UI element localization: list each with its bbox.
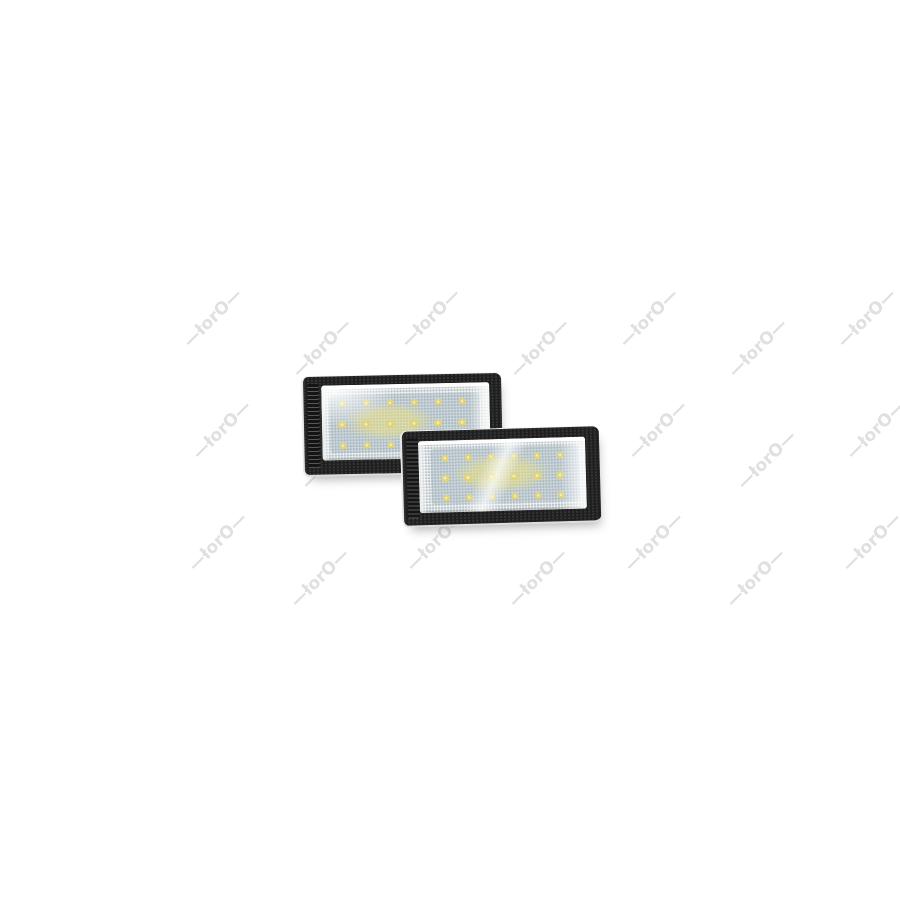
watermark-text: —łorO— bbox=[624, 396, 691, 463]
watermark-text: —łorO— bbox=[620, 508, 687, 575]
led-dot bbox=[457, 418, 467, 425]
watermark-text: —łorO— bbox=[188, 396, 255, 463]
watermark-text: —łorO— bbox=[842, 396, 900, 463]
watermark-text: —łorO— bbox=[506, 314, 573, 381]
watermark-text: —łorO— bbox=[615, 284, 682, 351]
lens-streak-reflection bbox=[418, 437, 587, 514]
watermark-text: —łorO— bbox=[179, 284, 246, 351]
product-photo-canvas: —łorO——łorO——łorO——łorO——łorO——łorO——łor… bbox=[0, 0, 900, 900]
connector-ridges bbox=[307, 384, 321, 468]
led-dot bbox=[433, 419, 443, 426]
watermark-text: —łorO— bbox=[184, 508, 251, 575]
led-dot bbox=[434, 398, 441, 405]
led-dot bbox=[339, 442, 346, 449]
led-dot bbox=[387, 441, 394, 448]
lamp-lens bbox=[418, 437, 587, 514]
watermark-text: —łorO— bbox=[838, 508, 900, 575]
led-dot bbox=[363, 441, 370, 448]
watermark-text: —łorO— bbox=[724, 314, 791, 381]
front-lamp bbox=[400, 425, 602, 528]
watermark-text: —łorO— bbox=[833, 284, 900, 351]
watermark-text: —łorO— bbox=[722, 544, 789, 611]
watermark-text: —łorO— bbox=[397, 284, 464, 351]
watermark-text: —łorO— bbox=[733, 426, 800, 493]
lens-topleft-reflection bbox=[321, 384, 397, 427]
watermark-text: —łorO— bbox=[288, 314, 355, 381]
led-dot bbox=[410, 398, 417, 405]
watermark-text: —łorO— bbox=[504, 544, 571, 611]
led-dot bbox=[458, 397, 465, 404]
watermark-text: —łorO— bbox=[286, 544, 353, 611]
led-dot bbox=[409, 419, 419, 426]
